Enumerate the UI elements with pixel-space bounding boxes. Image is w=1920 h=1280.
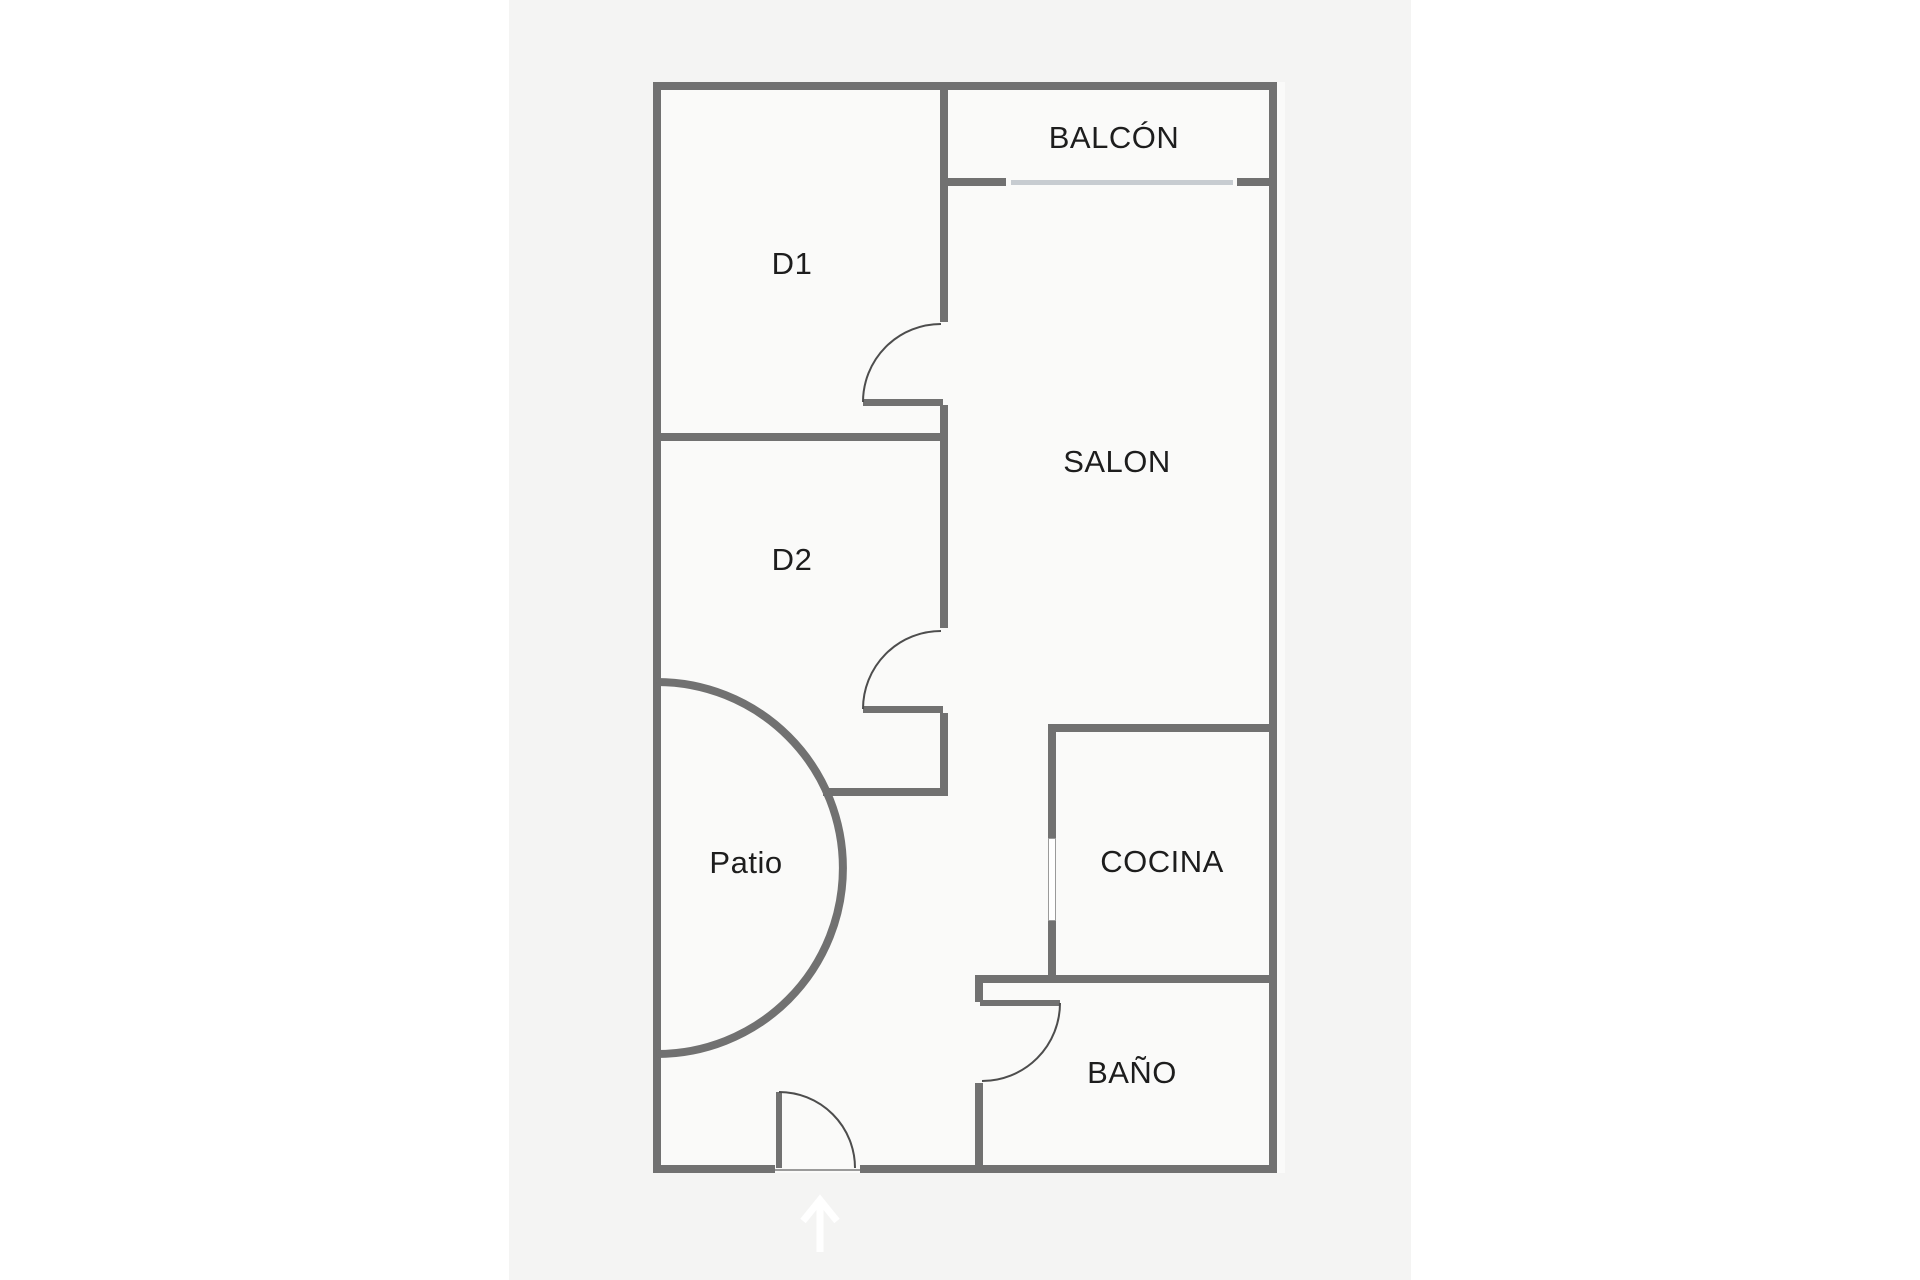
room-label-salon: SALON xyxy=(1063,444,1171,480)
wall-exterior-bottom-right-segment xyxy=(860,1165,1277,1173)
door-leaf-entrance xyxy=(776,1092,782,1168)
wall-bano-left-lower xyxy=(975,1083,983,1173)
wall-d2-salon-lower xyxy=(940,713,948,795)
cocina-door-opening xyxy=(1048,838,1056,921)
door-leaf-d1 xyxy=(863,399,943,406)
wall-balcony-left-segment xyxy=(940,178,1006,186)
plan-interior-floor xyxy=(653,82,1285,1173)
wall-exterior-right xyxy=(1269,82,1277,1173)
balcony-window xyxy=(1011,180,1233,185)
wall-bano-left-upper xyxy=(975,975,983,1002)
room-label-d2: D2 xyxy=(772,542,813,578)
wall-d1-salon-upper xyxy=(940,82,948,322)
wall-balcony-right-segment xyxy=(1237,178,1277,186)
wall-d1-d2 xyxy=(653,433,948,441)
wall-exterior-top xyxy=(653,82,1277,90)
wall-bano-top xyxy=(975,975,1277,983)
room-label-d1: D1 xyxy=(772,246,813,282)
wall-exterior-bottom-left-segment xyxy=(653,1165,775,1173)
floor-plan-canvas: BALCÓN D1 SALON D2 Patio COCINA BAÑO xyxy=(0,0,1920,1280)
room-label-bano: BAÑO xyxy=(1087,1055,1177,1091)
entrance-threshold xyxy=(775,1169,860,1171)
wall-cocina-left-lower xyxy=(1048,921,1056,978)
door-leaf-d2 xyxy=(863,706,943,713)
door-leaf-bano xyxy=(980,1000,1060,1006)
room-label-cocina: COCINA xyxy=(1100,844,1224,880)
wall-cocina-top xyxy=(1048,724,1277,732)
wall-cocina-left-upper xyxy=(1048,724,1056,838)
room-label-balcon: BALCÓN xyxy=(1049,120,1179,156)
wall-exterior-left xyxy=(653,82,661,1173)
room-label-patio: Patio xyxy=(709,845,782,881)
wall-d2-bottom xyxy=(823,788,948,796)
